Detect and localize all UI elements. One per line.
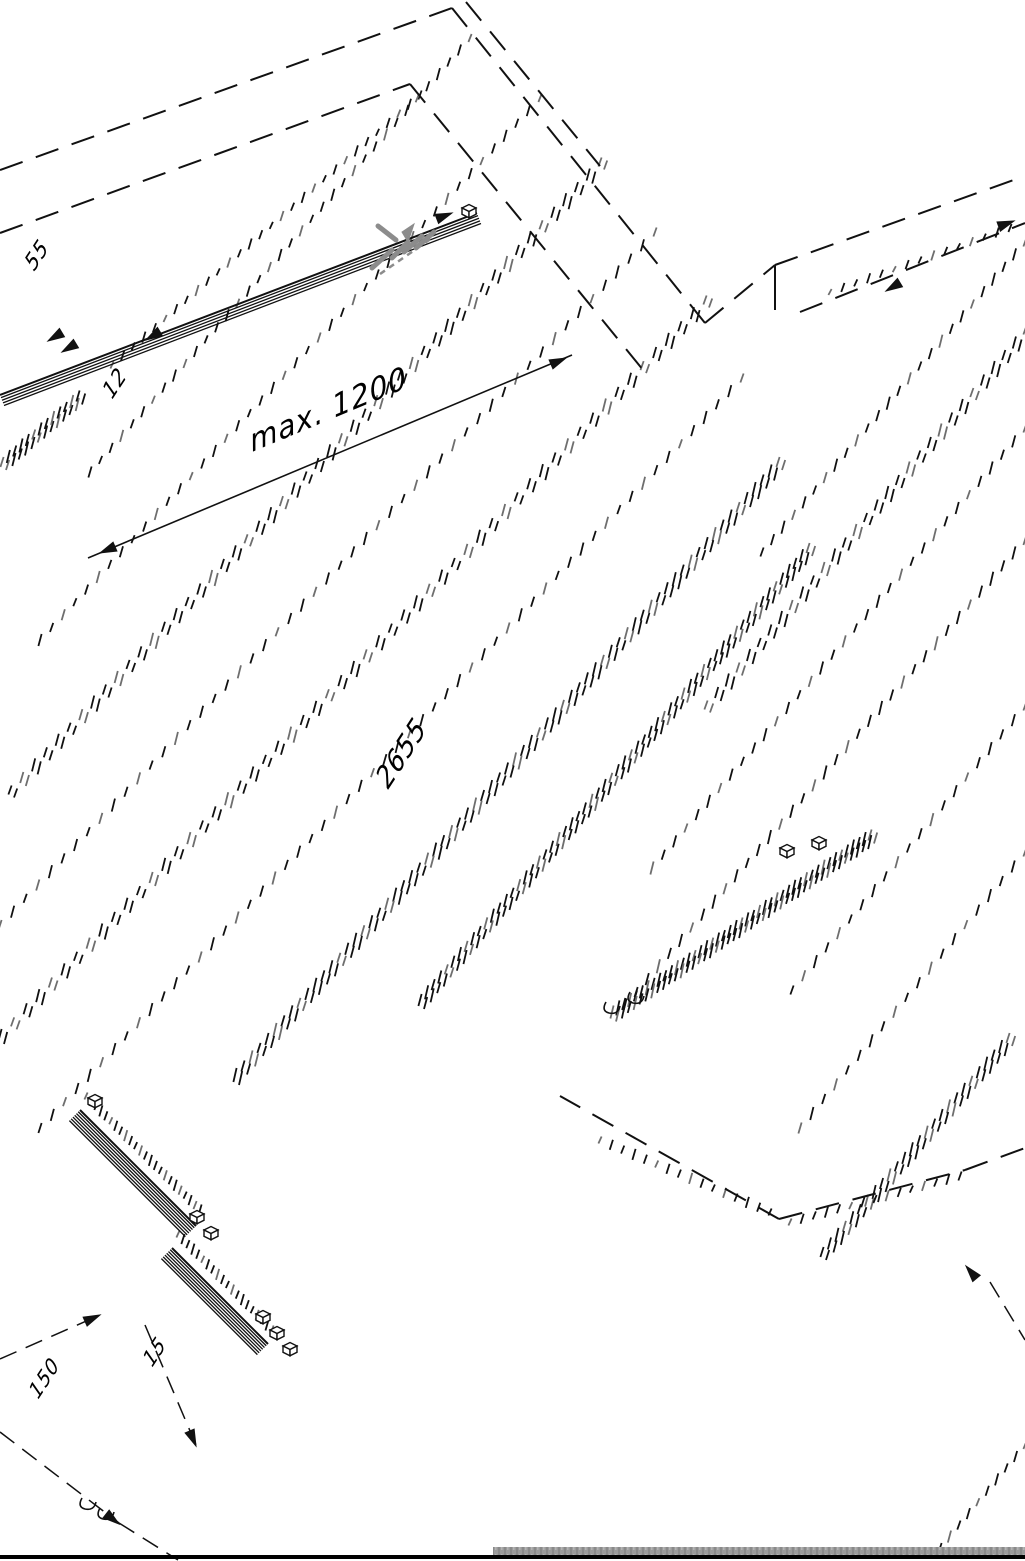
dimension-label-track-width: 55 [20,234,54,276]
panel-edge-hatching [0,34,1025,1553]
mounting-clips [80,205,826,1520]
ground-line [0,1555,1025,1559]
dimension-label-floor-gap: 15 [138,1331,170,1371]
dimension-label-panel-gap: 12 [98,362,132,404]
technical-drawing-page: 55 12 max. 1200 2655 150 15 [0,0,1025,1561]
dimension-labels: 55 12 max. 1200 2655 150 15 [20,234,432,1403]
dimension-label-panel-height: 2655 [371,712,433,795]
construction-plane-outlines [0,2,1025,1560]
dimension-label-max-spacing: max. 1200 [247,360,410,460]
dimension-arrows [48,213,1014,1524]
dimension-label-floor-offset: 150 [24,1352,64,1404]
isometric-assembly-drawing: 55 12 max. 1200 2655 150 15 [0,0,1025,1561]
floor-strip [493,1547,1025,1555]
